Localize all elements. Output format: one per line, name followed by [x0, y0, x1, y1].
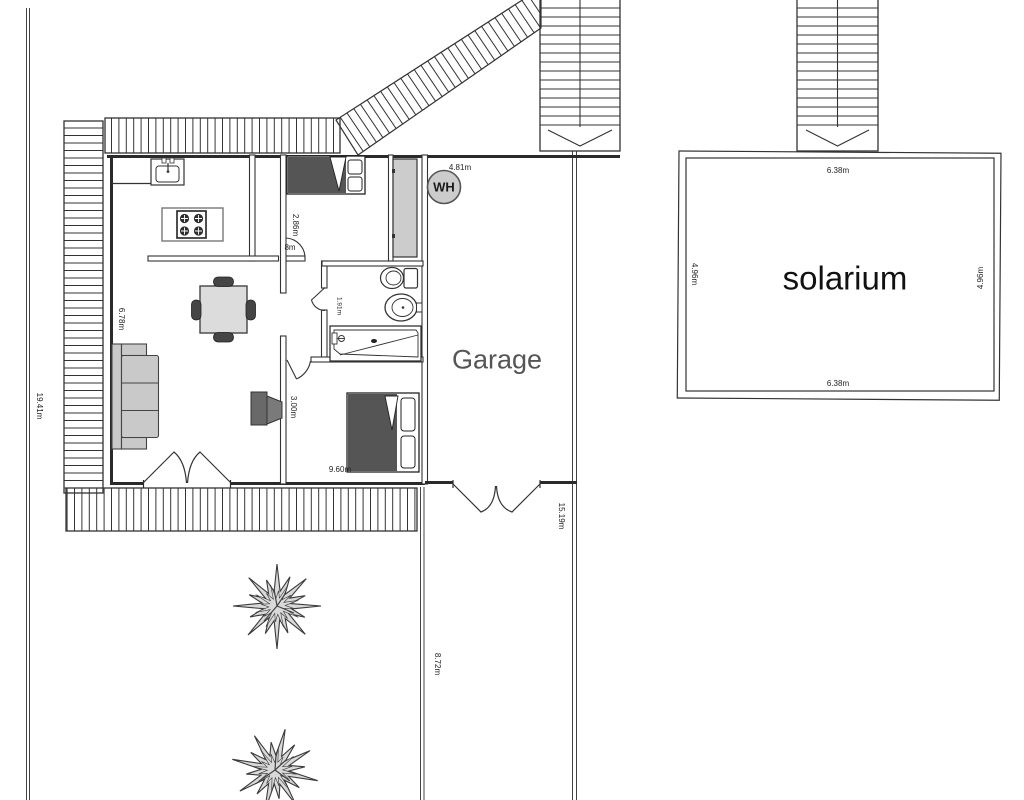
dim-label-house-width: 9.60m [329, 466, 351, 474]
dim-label-solarium-right: 4.96m [977, 267, 985, 289]
dining-chair [246, 300, 256, 320]
hatched-wall-top [105, 118, 340, 153]
desk-chair [267, 396, 282, 424]
door-bathroom [312, 288, 326, 311]
dim-label-solarium-bottom: 6.38m [827, 380, 849, 388]
garage-walls [422, 155, 577, 488]
stairs-solarium [797, 0, 878, 151]
floor-plan-drawing [0, 0, 1024, 800]
bathtub [330, 326, 421, 361]
sofa [112, 344, 159, 449]
dim-label-garage-top: 4.81m [449, 164, 471, 172]
stairs-house [540, 0, 620, 151]
dim-label-solarium-top: 6.38m [827, 167, 849, 175]
kitchen-stove [177, 211, 206, 238]
dining-table [200, 286, 247, 333]
entrance-double-door [143, 452, 231, 483]
bathroom-sink [385, 294, 422, 321]
water-heater-label: WH [433, 181, 455, 194]
stairs-diagonal [336, 0, 541, 155]
property-line-left [27, 8, 30, 800]
dining-chair [214, 333, 234, 343]
dim-label-living: 6.78m [117, 308, 125, 330]
property-line-right [573, 151, 577, 800]
dim-label-boundary-left: 19.41m [35, 393, 43, 420]
dim-label-driveway: 8.72m [433, 653, 441, 675]
stairs-down-arrow-icon [548, 130, 612, 146]
tree [233, 564, 321, 649]
desk [251, 392, 267, 425]
hatched-wall-left [64, 121, 103, 493]
dim-label-garage-right: 15.19m [557, 503, 565, 530]
bed-2 [347, 393, 419, 472]
dim-label-bedroom1-door: 8m [284, 244, 295, 252]
kitchen-sink [151, 158, 184, 185]
door-bedroom2 [287, 360, 311, 379]
toilet [381, 268, 418, 289]
bed-1 [287, 156, 365, 194]
dim-label-bathroom-door: 1.91m [335, 297, 342, 315]
hatched-wall-bottom [66, 488, 417, 531]
driveway-line-left [421, 487, 425, 800]
dining-chair [214, 277, 234, 287]
garage-double-door [453, 484, 540, 512]
room-label-garage: Garage [452, 347, 542, 374]
dim-label-solarium-left: 4.96m [690, 263, 698, 285]
stairs-down-arrow-icon [806, 130, 869, 146]
wardrobe [392, 159, 417, 257]
room-label-solarium: solarium [783, 262, 908, 295]
dining-chair [192, 300, 202, 320]
dim-label-bedroom2: 3.00m [289, 396, 297, 418]
tree [222, 719, 328, 800]
floor-plan: 19.41m 6.78m 2.86m 8m 1.91m 3.00m 9.60m … [0, 0, 1024, 800]
dim-label-bedroom1: 2.86m [291, 214, 299, 236]
